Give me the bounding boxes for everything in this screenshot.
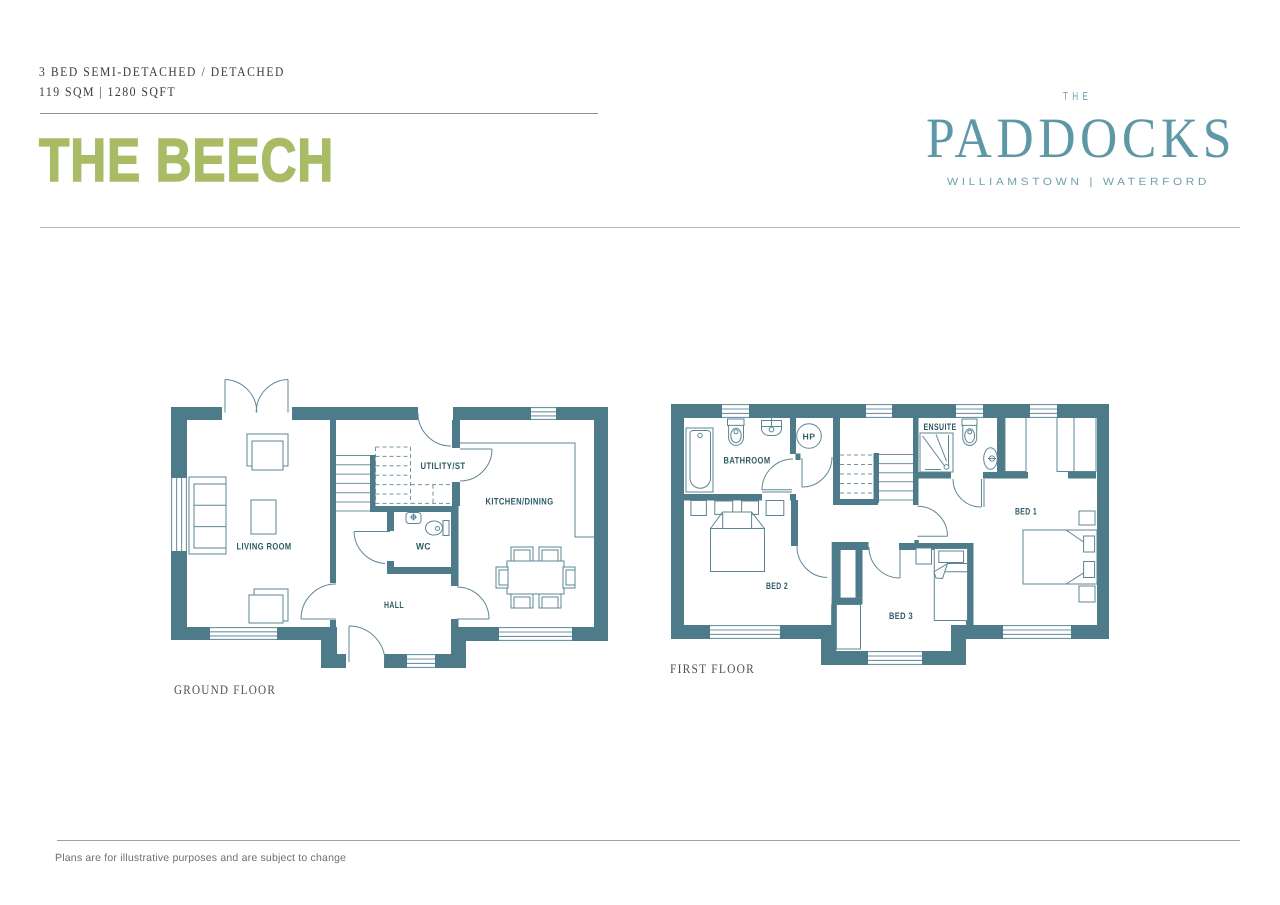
svg-text:FIRST FLOOR: FIRST FLOOR xyxy=(670,661,755,676)
svg-text:THE: THE xyxy=(1063,91,1092,103)
svg-text:HP: HP xyxy=(803,432,816,442)
svg-text:BED 2: BED 2 xyxy=(766,580,788,591)
svg-text:WILLIAMSTOWN | WATERFORD: WILLIAMSTOWN | WATERFORD xyxy=(947,176,1210,188)
svg-text:BATHROOM: BATHROOM xyxy=(724,455,771,466)
svg-text:3 BED SEMI-DETACHED / DETACHED: 3 BED SEMI-DETACHED / DETACHED xyxy=(39,64,285,79)
svg-text:WC: WC xyxy=(416,541,431,552)
svg-text:119 SQM | 1280 SQFT: 119 SQM | 1280 SQFT xyxy=(39,84,176,99)
svg-text:BED 3: BED 3 xyxy=(889,610,913,621)
svg-text:LIVING ROOM: LIVING ROOM xyxy=(237,541,292,552)
svg-text:GROUND FLOOR: GROUND FLOOR xyxy=(174,682,276,697)
svg-text:ENSUITE: ENSUITE xyxy=(924,421,957,432)
svg-text:THE BEECH: THE BEECH xyxy=(39,128,334,190)
svg-text:KITCHEN/DINING: KITCHEN/DINING xyxy=(486,496,554,507)
svg-text:HALL: HALL xyxy=(384,599,404,610)
svg-text:BED 1: BED 1 xyxy=(1015,506,1037,517)
svg-text:UTILITY/ST: UTILITY/ST xyxy=(421,460,466,471)
svg-text:PADDOCKS: PADDOCKS xyxy=(926,107,1236,170)
